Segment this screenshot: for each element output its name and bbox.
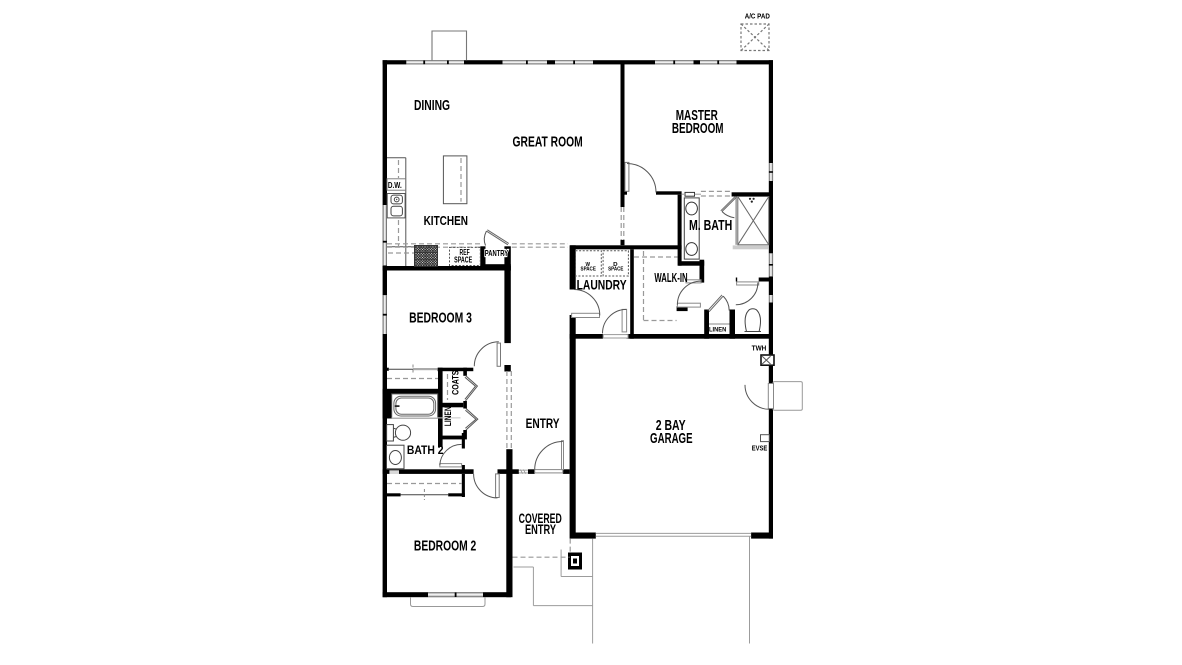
svg-text:LAUNDRY: LAUNDRY [577, 278, 627, 293]
svg-text:D.W.: D.W. [388, 180, 402, 190]
svg-text:GREAT ROOM: GREAT ROOM [513, 133, 583, 150]
svg-text:TWH: TWH [752, 344, 767, 353]
svg-text:LINEN: LINEN [709, 327, 726, 334]
svg-text:WALK-IN: WALK-IN [654, 271, 687, 285]
svg-text:SPACE: SPACE [608, 267, 624, 273]
svg-text:BEDROOM 2: BEDROOM 2 [414, 538, 476, 554]
svg-text:ENTRY: ENTRY [525, 521, 556, 537]
svg-text:A/C PAD: A/C PAD [745, 13, 770, 20]
svg-text:M. BATH: M. BATH [689, 218, 732, 234]
svg-text:LINEN: LINEN [443, 406, 453, 426]
svg-text:SPACE: SPACE [454, 255, 473, 264]
svg-text:KITCHEN: KITCHEN [424, 213, 468, 228]
svg-text:BEDROOM: BEDROOM [672, 121, 724, 137]
svg-text:BATH 2: BATH 2 [407, 444, 444, 457]
svg-text:ENTRY: ENTRY [526, 416, 560, 432]
svg-text:SPACE: SPACE [581, 267, 597, 273]
svg-text:DINING: DINING [414, 97, 450, 114]
svg-text:COATS: COATS [450, 370, 460, 394]
svg-text:GARAGE: GARAGE [650, 431, 693, 447]
svg-text:BEDROOM 3: BEDROOM 3 [409, 310, 472, 326]
svg-text:EVSE: EVSE [752, 443, 768, 452]
svg-text:PANTRY: PANTRY [485, 248, 509, 258]
